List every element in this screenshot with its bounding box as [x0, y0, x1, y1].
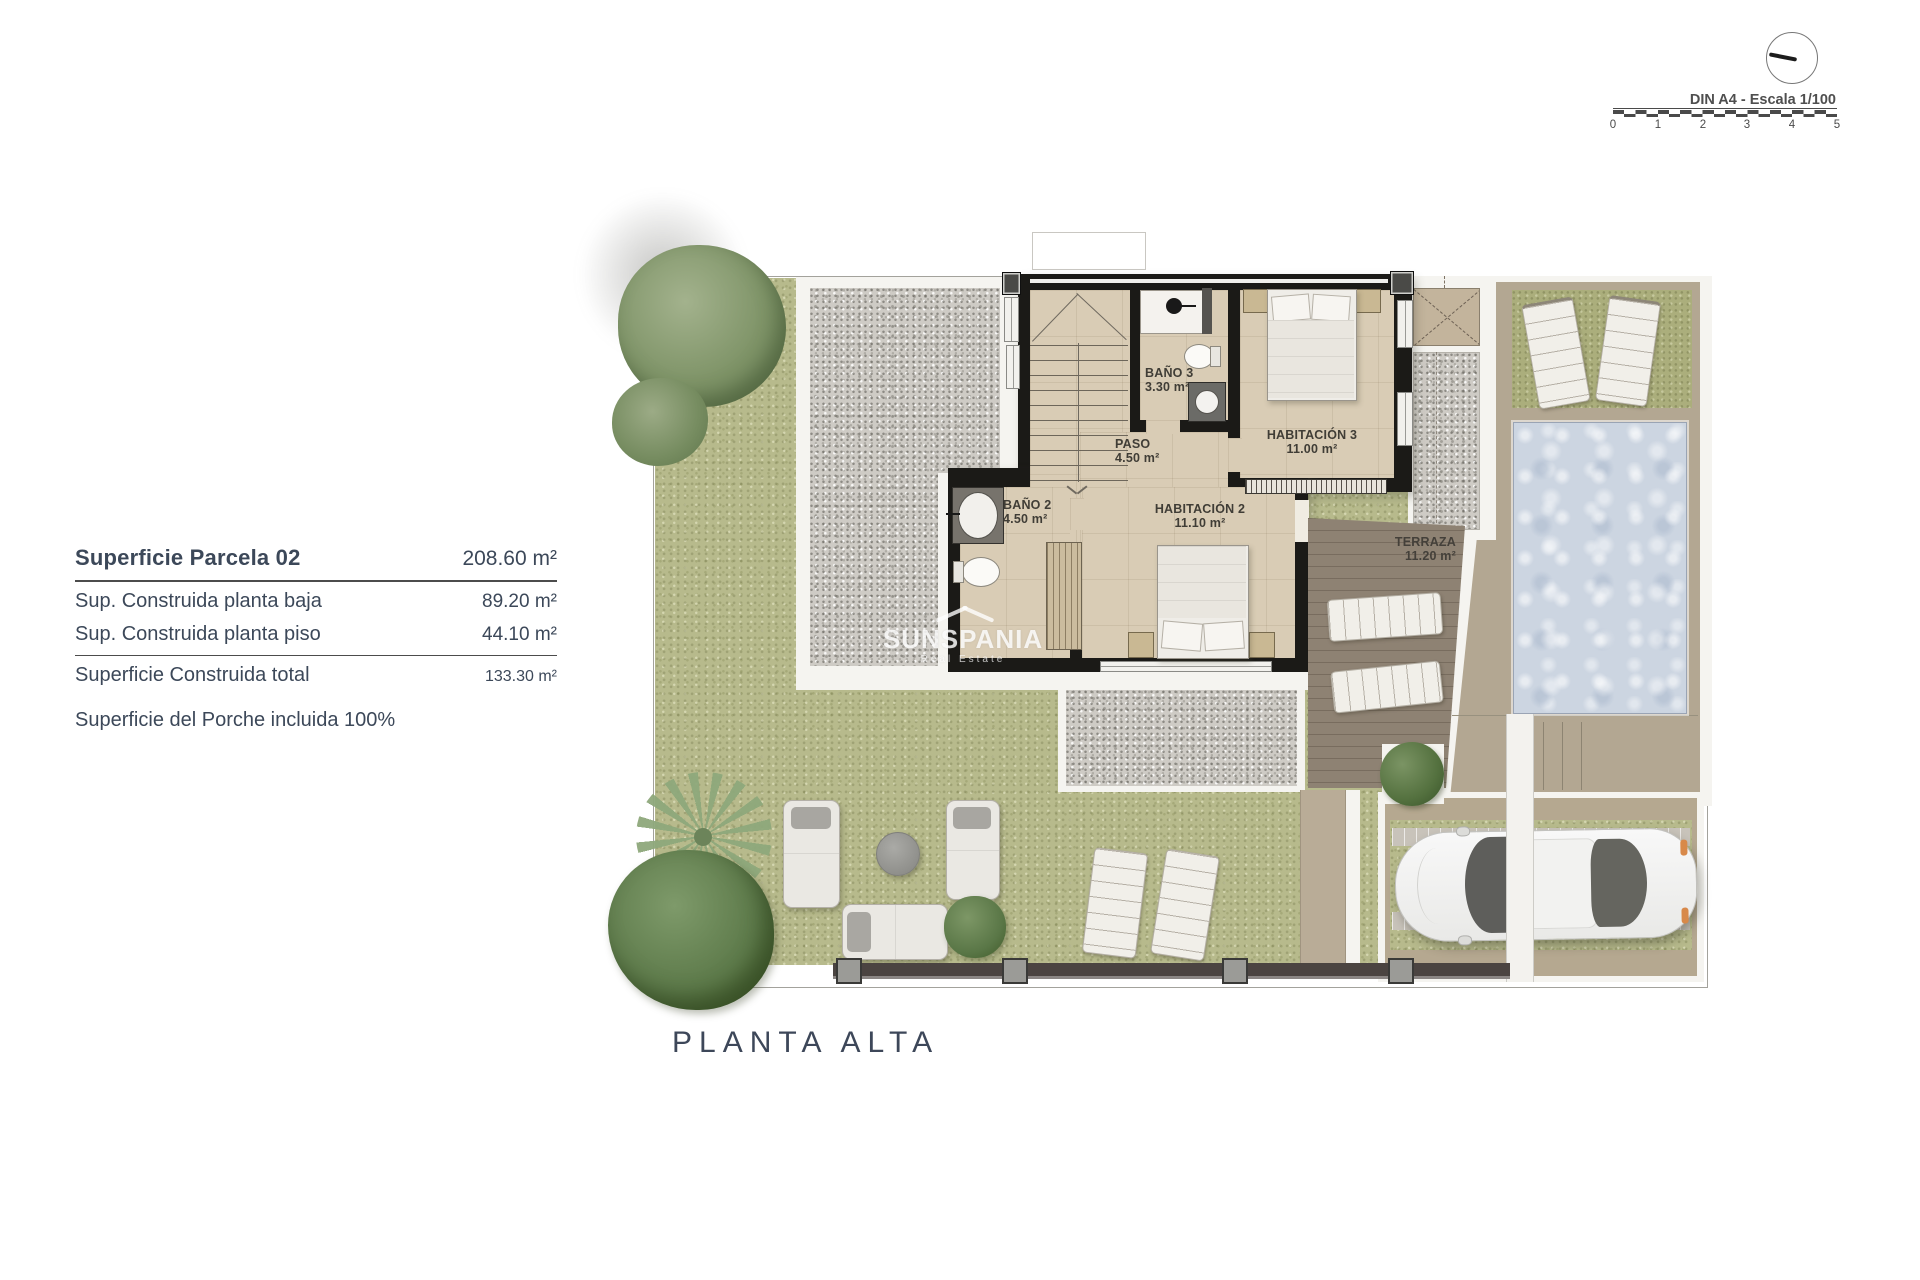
porch-band-bottom: [940, 672, 1312, 690]
surface-info-panel: Superficie Parcela 02 208.60 m² Sup. Con…: [75, 545, 557, 732]
room-area: 11.00 m²: [1250, 442, 1374, 456]
room-area: 11.20 m²: [1356, 549, 1456, 563]
info-row: Sup. Construida planta piso 44.10 m²: [75, 623, 557, 646]
garden-sofa: [783, 800, 840, 908]
terrace-louver-window: [1245, 479, 1387, 494]
pool-steps: [1543, 722, 1544, 790]
info-total-row: Superficie Construida total 133.30 m²: [75, 664, 557, 687]
window-left: [1004, 297, 1019, 342]
duvet: [1158, 546, 1246, 618]
window-right: [1397, 300, 1413, 348]
shower-arm: [1180, 305, 1196, 307]
shower-arm: [946, 513, 960, 515]
label-habitacion2: HABITACIÓN 2 11.10 m²: [1138, 502, 1262, 530]
swimming-pool: [1513, 422, 1687, 714]
pillow: [1203, 621, 1245, 652]
room-name: BAÑO 3: [1145, 366, 1193, 380]
window-right: [1397, 392, 1413, 446]
nightstand: [1243, 289, 1269, 313]
car-mirror: [1458, 935, 1472, 945]
party-wall-band: [1506, 714, 1534, 982]
stairs-stringer: [1078, 343, 1079, 482]
pool-steps: [1562, 722, 1563, 790]
garden-path-border: [1346, 790, 1360, 965]
room-area: 4.50 m²: [1115, 451, 1159, 465]
toilet-tank: [953, 561, 964, 583]
house-roof-icon: [933, 600, 993, 626]
pillow: [1311, 294, 1351, 323]
scale-indicator: DIN A4 - Escala 1/100 0 1 2 3 4 5: [1600, 20, 1850, 140]
bush: [944, 896, 1006, 958]
coffee-table: [876, 832, 920, 876]
label-terraza: TERRAZA 11.20 m²: [1356, 535, 1456, 563]
room-area: 3.30 m²: [1145, 380, 1193, 394]
label-paso: PASO 4.50 m²: [1115, 437, 1159, 465]
label-habitacion3: HABITACIÓN 3 11.00 m²: [1250, 428, 1374, 456]
row-value: 44.10 m²: [482, 624, 557, 646]
scale-tick: 2: [1693, 119, 1713, 131]
scale-label: DIN A4 - Escala 1/100: [1650, 92, 1836, 108]
nightstand: [1355, 289, 1381, 313]
bed: [1157, 545, 1249, 659]
garden-path: [1300, 790, 1346, 965]
service-dashed-line: [1444, 276, 1445, 288]
toilet: [962, 557, 1000, 587]
scale-ruler: [1613, 108, 1837, 117]
wall-pillar: [1002, 272, 1021, 295]
sofa-cushion: [953, 807, 991, 829]
window-bottom: [1100, 661, 1272, 672]
door-habitacion3: [1228, 438, 1242, 472]
label-bano2: BAÑO 2 4.50 m²: [1003, 498, 1051, 526]
parcel-title-value: 208.60 m²: [462, 547, 557, 571]
room-area: 11.10 m²: [1138, 516, 1262, 530]
scale-tick: 4: [1782, 119, 1802, 131]
door-bano3: [1146, 420, 1180, 434]
room-name: PASO: [1115, 437, 1159, 451]
sofa-cushion: [847, 912, 871, 952]
pillow: [1161, 620, 1203, 651]
room-name: HABITACIÓN 3: [1250, 428, 1374, 442]
shower-tray: [958, 492, 998, 539]
parcel-title-label: Superficie Parcela 02: [75, 545, 301, 571]
palm-center: [694, 828, 712, 846]
tree: [608, 850, 774, 1010]
bush: [1380, 742, 1444, 806]
door-bano2: [1070, 498, 1084, 530]
total-value: 133.30 m²: [485, 668, 557, 686]
divider: [75, 655, 557, 656]
scale-tick: 1: [1648, 119, 1668, 131]
pillow: [1271, 293, 1311, 322]
window-top-glass: [1030, 279, 1388, 283]
duvet: [1268, 320, 1354, 398]
sofa-cushion: [791, 807, 831, 829]
toilet-tank: [1210, 346, 1221, 367]
room-name: BAÑO 2: [1003, 498, 1051, 512]
canopy-outline: [1032, 232, 1146, 270]
fence-post: [1002, 958, 1028, 984]
car-rear-glass: [1590, 838, 1648, 927]
watermark-subtitle: Real Estate: [858, 654, 1068, 666]
car-taillight: [1681, 908, 1688, 924]
total-label: Superficie Construida total: [75, 664, 310, 687]
scale-tick: 5: [1827, 119, 1847, 131]
car: [1394, 827, 1696, 940]
wash-basin: [1195, 390, 1219, 414]
garden-loveseat: [842, 904, 948, 960]
room-name: TERRAZA: [1356, 535, 1456, 549]
lower-gravel-patio: [1066, 690, 1297, 786]
divider: [75, 580, 557, 582]
porch-note: Superficie del Porche incluida 100%: [75, 709, 557, 732]
service-dashed-line: [1436, 352, 1437, 528]
fence-post: [836, 958, 862, 984]
row-label: Sup. Construida planta piso: [75, 623, 321, 646]
stairs-treads: [1030, 345, 1128, 482]
label-bano3: BAÑO 3 3.30 m²: [1145, 366, 1193, 394]
scale-tick: 3: [1737, 119, 1757, 131]
skylight-square: [1413, 288, 1480, 346]
compass-icon: [1766, 32, 1818, 84]
row-value: 89.20 m²: [482, 591, 557, 613]
fence-post: [1388, 958, 1414, 984]
wall-pillar: [1390, 271, 1414, 295]
room-area: 4.50 m²: [1003, 512, 1051, 526]
info-row: Sup. Construida planta baja 89.20 m²: [75, 590, 557, 613]
floor-plan-page: BAÑO 3 3.30 m² PASO 4.50 m² HABITACIÓN 3…: [0, 0, 1920, 1280]
window-left: [1006, 345, 1020, 389]
scale-tick: 0: [1603, 119, 1623, 131]
side-gravel-strip: [1413, 352, 1480, 530]
pool-steps: [1581, 722, 1582, 790]
car-mirror: [1456, 826, 1470, 836]
bath-divider: [1202, 288, 1212, 334]
garden-sofa: [946, 800, 1000, 900]
bed: [1267, 289, 1357, 401]
plan-title: PLANTA ALTA: [672, 1026, 939, 1060]
row-label: Sup. Construida planta baja: [75, 590, 322, 613]
deck-edge-line: [1452, 715, 1698, 716]
car-taillight: [1680, 840, 1687, 856]
watermark-name: SUNSPANIA: [858, 626, 1068, 652]
fence-post: [1222, 958, 1248, 984]
terrace-lounger: [1327, 592, 1444, 642]
door-terraza: [1295, 500, 1309, 542]
nightstand: [1249, 632, 1275, 658]
room-name: HABITACIÓN 2: [1138, 502, 1262, 516]
nightstand: [1128, 632, 1154, 658]
